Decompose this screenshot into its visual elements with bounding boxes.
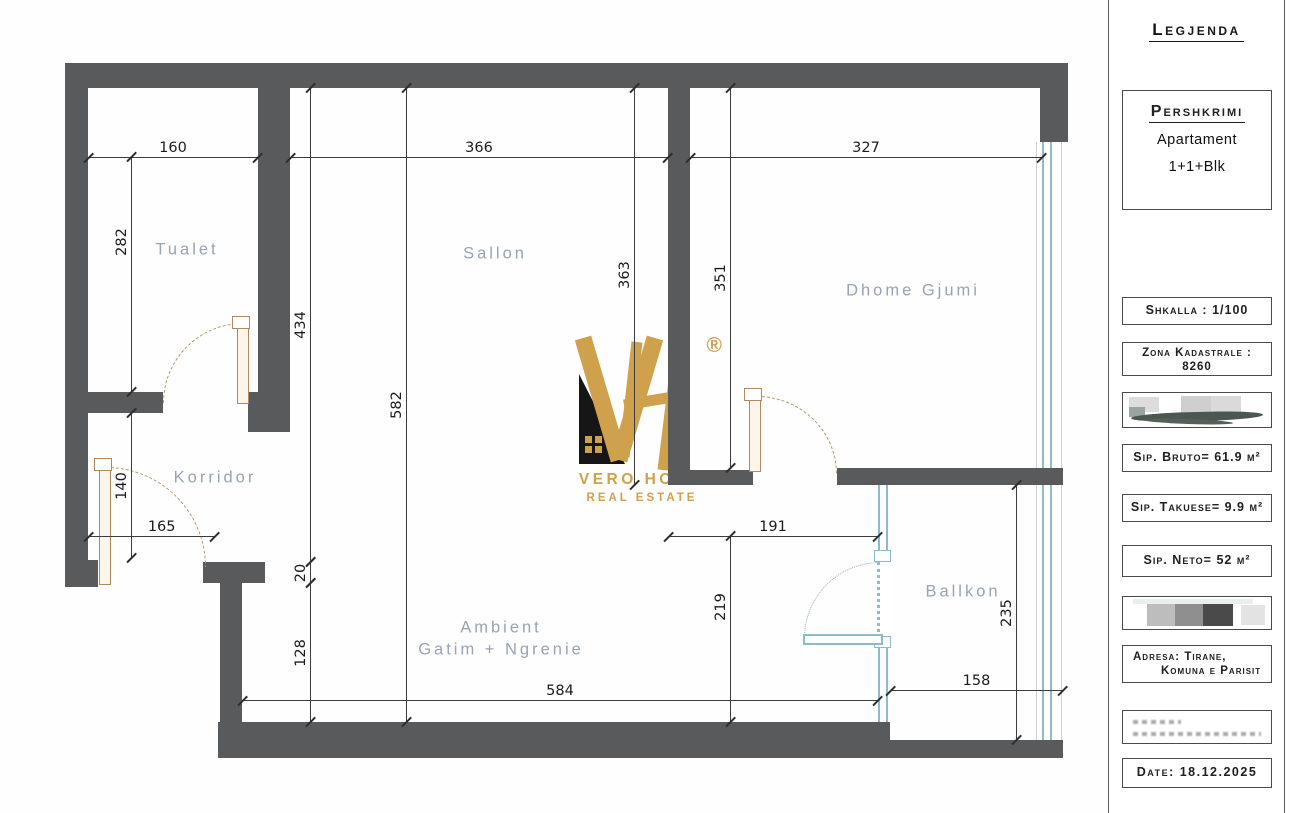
entrance-door-leaf (99, 465, 111, 585)
balcony-glass-door-leaf (803, 634, 883, 645)
wall-tualet-south (65, 392, 163, 413)
wall-west-foot (65, 560, 98, 587)
glass-door-pivot (874, 550, 891, 562)
dimension-balcony-width: 158 (890, 690, 1063, 691)
cadastral-zone-box: Zona Kadastrale : 8260 (1122, 342, 1272, 376)
legend-title: Legjenda (1109, 20, 1284, 40)
dimension-434: 434 (310, 88, 311, 562)
room-label-korridor: Korridor (174, 469, 257, 488)
date-box: Date: 18.12.2025 (1122, 758, 1272, 788)
redacted-contact-box (1122, 710, 1272, 744)
dimension-bedroom-width: 327 (690, 157, 1042, 158)
dimension-191: 191 (668, 536, 878, 537)
room-label-sallon: Sallon (463, 245, 527, 264)
dimension-128: 128 (310, 583, 311, 722)
room-label-ballkon: Ballkon (925, 583, 1000, 602)
balcony-door-swing-arc (804, 562, 880, 638)
room-label-dhome-gjumi: Dhome Gjumi (846, 282, 980, 301)
bedroom-door-swing-arc (757, 396, 837, 474)
window-glass-east (1042, 142, 1052, 740)
wall-tualet-sallon (258, 88, 290, 432)
description-heading: Pershkrimi (1123, 103, 1271, 121)
address-box: Adresa: Tirane, Komuna e Parisit (1122, 645, 1272, 683)
wall-south-main (218, 722, 890, 758)
wall-dhome-south-left (690, 470, 753, 485)
wall-north (65, 63, 1068, 88)
wall-korridor-south (203, 562, 265, 583)
dimension-tualet-width: 160 (88, 157, 258, 158)
dimension-219: 219 (730, 536, 731, 722)
apartment-type: Apartament (1123, 132, 1271, 148)
redacted-stamp-box (1122, 596, 1272, 630)
wall-dhome-south-right (837, 468, 1063, 485)
registered-trademark-icon: ® (707, 334, 722, 358)
floor-plan: Tualet Sallon Dhome Gjumi Korridor Ambie… (0, 0, 1290, 813)
dimension-sallon-width: 366 (290, 157, 668, 158)
dimension-bedroom-depth: 351 (730, 88, 731, 468)
window-frame-line (1061, 142, 1062, 740)
vh-monogram-icon (567, 332, 717, 472)
entrance-door-stop (94, 458, 112, 471)
dimension-582: 582 (406, 88, 407, 722)
dimension-584: 584 (242, 700, 878, 701)
wall-sallon-dhome (668, 88, 690, 485)
dimension-balcony-depth: 235 (1016, 485, 1017, 740)
scale-box: Shkalla : 1/100 (1122, 297, 1272, 325)
brand-tagline: REAL ESTATE (556, 492, 728, 504)
tualet-door-leaf (237, 322, 249, 404)
net-area-box: Sip. Neto= 52 m² (1122, 545, 1272, 577)
dimension-sallon-depth: 363 (634, 88, 635, 485)
wall-south-balcony (890, 740, 1063, 758)
room-label-ambient: Ambient Gatim + Ngrenie (418, 619, 584, 660)
room-label-tualet: Tualet (155, 241, 218, 260)
wall-ambient-west (220, 583, 242, 722)
tualet-door-swing-arc (163, 323, 243, 403)
apartment-scheme: 1+1+Blk (1123, 159, 1271, 175)
dimension-tualet-depth: 282 (131, 157, 132, 392)
common-area-box: Sip. Takuese= 9.9 m² (1122, 494, 1272, 522)
legend-panel: Legjenda Pershkrimi Apartament 1+1+Blk S… (1108, 0, 1285, 813)
redacted-signature-box (1122, 392, 1272, 428)
wall-northeast-corner (1040, 88, 1068, 142)
tualet-door-stop (232, 316, 250, 329)
dimension-korridor-opening: 165 (88, 536, 215, 537)
gross-area-box: Sip. Bruto= 61.9 m² (1122, 444, 1272, 472)
wall-corner-block (248, 392, 290, 432)
description-box: Pershkrimi Apartament 1+1+Blk (1122, 90, 1272, 210)
bedroom-door-stop (744, 388, 762, 401)
bedroom-door-leaf (749, 394, 761, 472)
window-frame-line (1036, 142, 1037, 740)
